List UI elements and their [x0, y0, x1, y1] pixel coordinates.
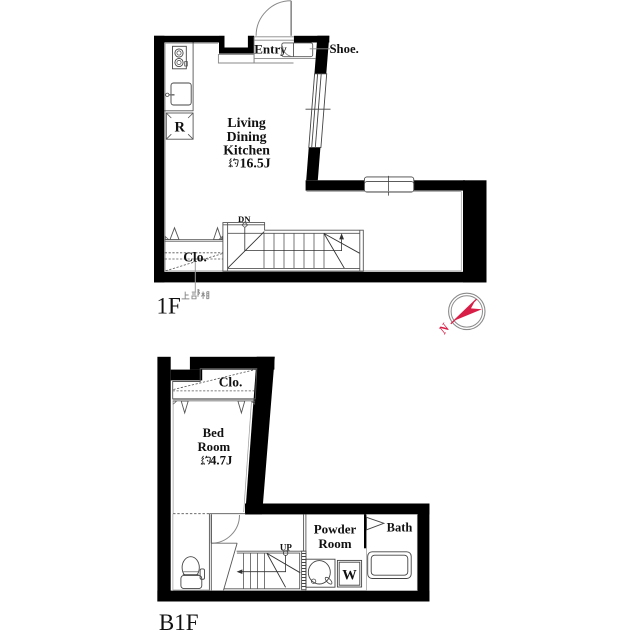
svg-text:Clo.: Clo. — [219, 375, 243, 390]
svg-text:Room: Room — [197, 440, 230, 454]
svg-text:Clo.: Clo. — [183, 250, 207, 265]
svg-text:1F: 1F — [157, 294, 181, 319]
svg-text:Powder: Powder — [314, 521, 357, 536]
svg-text:Living: Living — [227, 115, 265, 130]
svg-text:Bed: Bed — [203, 426, 224, 440]
svg-text:N: N — [435, 320, 453, 337]
svg-text:DN: DN — [238, 214, 251, 224]
svg-text:B1F: B1F — [159, 610, 199, 635]
svg-text:Room: Room — [318, 536, 351, 551]
svg-text:16.5J: 16.5J — [240, 155, 271, 170]
svg-text:Shoe.: Shoe. — [330, 42, 359, 56]
svg-text:Bath: Bath — [387, 520, 413, 534]
svg-text:4.7J: 4.7J — [210, 454, 233, 468]
svg-text:UP: UP — [280, 542, 292, 552]
svg-text:R: R — [174, 120, 185, 136]
svg-text:W: W — [342, 568, 357, 584]
